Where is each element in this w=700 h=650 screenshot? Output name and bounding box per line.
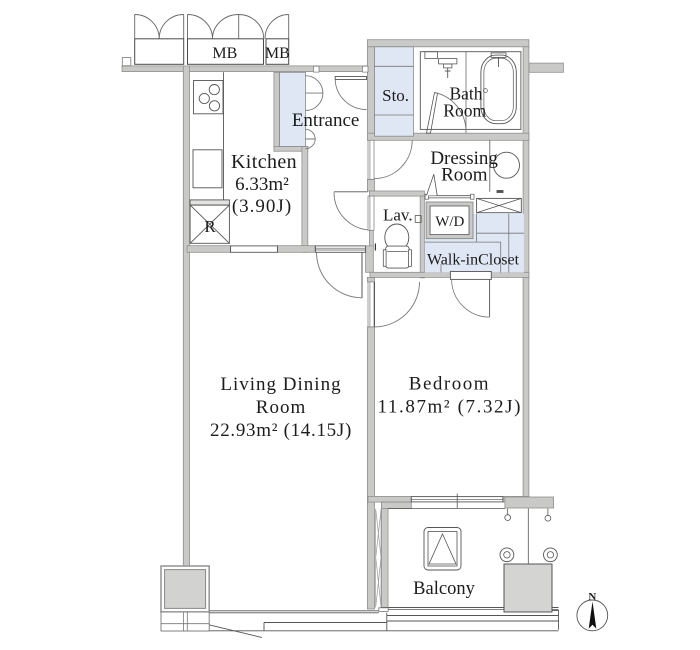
svg-text:11.87m² (7.32J): 11.87m² (7.32J) bbox=[378, 397, 523, 418]
svg-text:22.93m² (14.15J): 22.93m² (14.15J) bbox=[210, 420, 352, 441]
svg-text:Living Dining: Living Dining bbox=[220, 374, 341, 395]
svg-text:Lav.: Lav. bbox=[383, 206, 413, 225]
svg-text:Room: Room bbox=[443, 101, 486, 121]
svg-text:R: R bbox=[204, 217, 216, 236]
svg-text:N: N bbox=[588, 591, 596, 603]
svg-text:Balcony: Balcony bbox=[413, 579, 475, 599]
svg-text:Room: Room bbox=[256, 397, 306, 418]
svg-text:(3.90J): (3.90J) bbox=[232, 196, 292, 217]
svg-text:Bedroom: Bedroom bbox=[409, 373, 490, 394]
svg-text:Room: Room bbox=[441, 165, 488, 186]
svg-text:Kitchen: Kitchen bbox=[231, 151, 297, 173]
svg-text:Entrance: Entrance bbox=[292, 110, 360, 131]
svg-text:6.33m²: 6.33m² bbox=[235, 174, 289, 195]
svg-text:Walk-inCloset: Walk-inCloset bbox=[427, 252, 520, 269]
svg-text:Sto.: Sto. bbox=[382, 86, 409, 105]
svg-text:W/D: W/D bbox=[435, 214, 464, 230]
svg-text:MB: MB bbox=[212, 45, 237, 62]
svg-text:MB: MB bbox=[265, 45, 290, 62]
